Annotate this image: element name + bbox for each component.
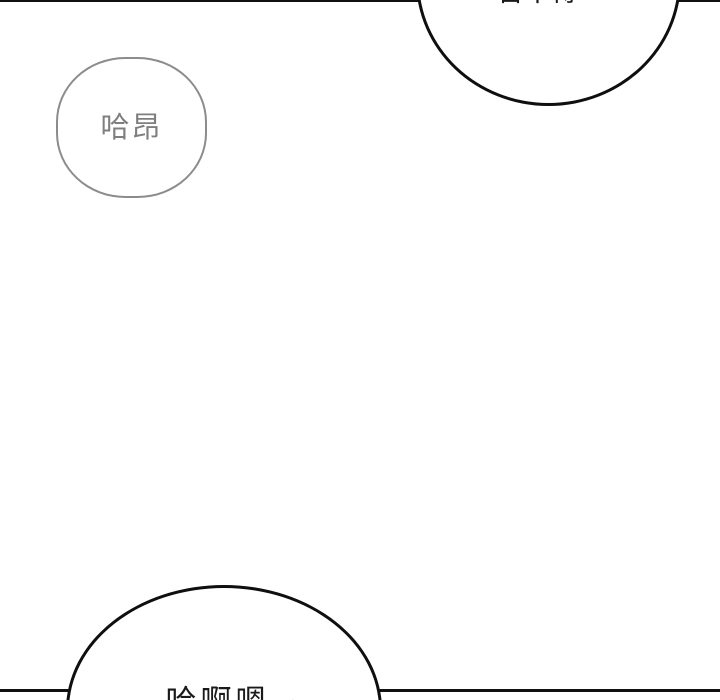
speech-bubble-bottom-text: 哈啊嗯~ <box>75 687 391 700</box>
speech-bubble-top <box>416 0 681 106</box>
speech-bubble-left-text: 哈昂 <box>100 113 162 142</box>
speech-bubble-top-text: 舍不得 <box>416 0 659 6</box>
speech-bubble-bottom <box>66 585 382 700</box>
speech-bubble-left: 哈昂 <box>56 57 207 198</box>
comic-page: 舍不得 哈昂 哈啊嗯~ <box>0 0 720 700</box>
